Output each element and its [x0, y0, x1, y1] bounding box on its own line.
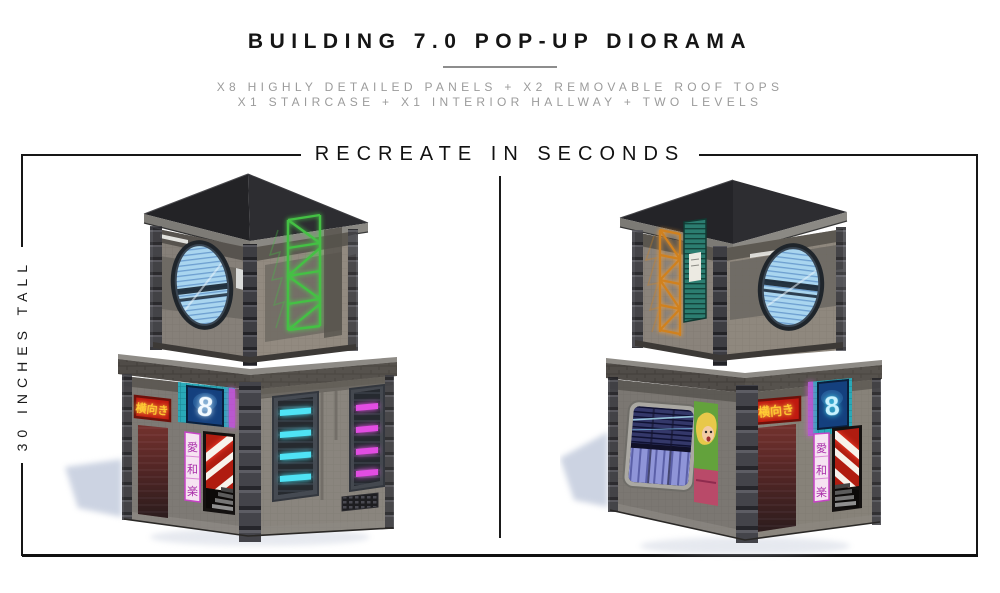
lower-box: 横向き 8 愛 和 楽 — [608, 377, 881, 543]
banner-line-left — [22, 154, 301, 156]
vertical-sign-char: 楽 — [187, 485, 198, 498]
red-sign: 横向き — [135, 396, 170, 421]
vertical-sign: 愛 和 楽 — [185, 432, 200, 502]
banner-label: RECREATE IN SECONDS — [315, 143, 685, 166]
cyan-neon-door — [273, 392, 318, 501]
page-title: BUILDING 7.0 POP-UP DIORAMA — [0, 30, 1000, 54]
shutter-door — [757, 424, 796, 532]
height-rail: 30 INCHES TALL — [6, 154, 38, 556]
number-sign-text: 8 — [196, 390, 215, 422]
center-divider — [499, 176, 501, 538]
diorama-left-view: 横向き 8 愛 和 楽 — [60, 170, 480, 570]
subtitle-line-1: X8 HIGHLY DETAILED PANELS + X2 REMOVABLE… — [0, 80, 1000, 94]
banner-line-right — [699, 154, 978, 156]
subtitle-line-2: X1 STAIRCASE + X1 INTERIOR HALLWAY + TWO… — [0, 95, 1000, 109]
vertical-sign-char: 和 — [816, 464, 827, 477]
magenta-neon-door — [350, 385, 384, 491]
vertical-sign-char: 楽 — [816, 486, 827, 499]
vertical-sign-char: 和 — [187, 463, 198, 476]
window-blinds — [623, 400, 700, 491]
cube-corner-pillar — [713, 246, 727, 366]
number-sign-panel: 8 — [178, 382, 235, 428]
red-sign-text: 横向き — [757, 401, 794, 419]
vertical-sign-char: 愛 — [187, 441, 198, 454]
height-rail-top-line — [21, 154, 23, 247]
upper-cube — [620, 180, 847, 366]
title-underline — [443, 66, 557, 68]
shutter-door — [138, 425, 168, 518]
corner-pillar — [239, 382, 261, 542]
poster-girl — [694, 401, 718, 506]
vertical-sign: 愛 和 楽 — [814, 433, 829, 502]
diorama-right-view: 横向き 8 愛 和 楽 — [560, 170, 980, 570]
cube-corner-pillar — [243, 244, 257, 366]
height-rail-bottom-line — [21, 463, 23, 556]
corner-pillar — [736, 385, 758, 543]
page: BUILDING 7.0 POP-UP DIORAMA X8 HIGHLY DE… — [0, 0, 1000, 593]
small-poster — [689, 252, 701, 282]
recreate-banner: RECREATE IN SECONDS — [22, 143, 978, 166]
upper-cube — [144, 174, 368, 366]
vertical-sign-char: 愛 — [816, 442, 827, 455]
number-sign-text: 8 — [823, 390, 841, 421]
height-label: 30 INCHES TALL — [14, 259, 30, 451]
red-sign: 横向き — [753, 397, 800, 424]
teal-shutter-panel — [684, 219, 706, 322]
striped-doorway — [828, 425, 866, 512]
lower-box: 横向き 8 愛 和 楽 — [122, 374, 394, 542]
